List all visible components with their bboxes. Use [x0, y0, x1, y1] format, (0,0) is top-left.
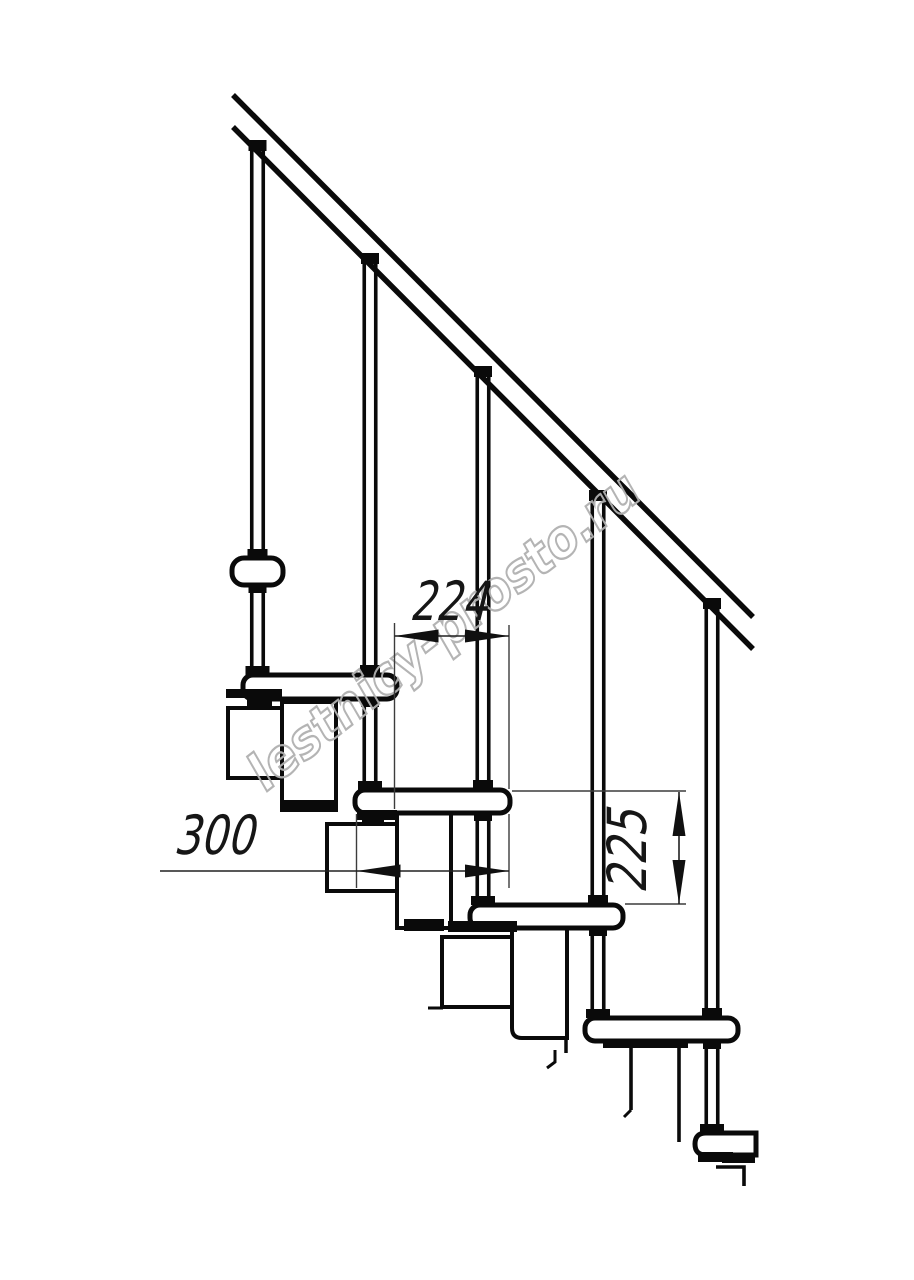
stair-structure-layer: [226, 95, 756, 1186]
staircase-drawing: lestnicy-prosto.ru 224 300 225: [0, 0, 914, 1280]
dim-label-going: 224: [406, 570, 500, 633]
drawing-page: lestnicy-prosto.ru 224 300 225: [0, 0, 914, 1280]
dim-label-riser: 225: [596, 797, 659, 897]
dim-label-depth: 300: [170, 804, 266, 867]
